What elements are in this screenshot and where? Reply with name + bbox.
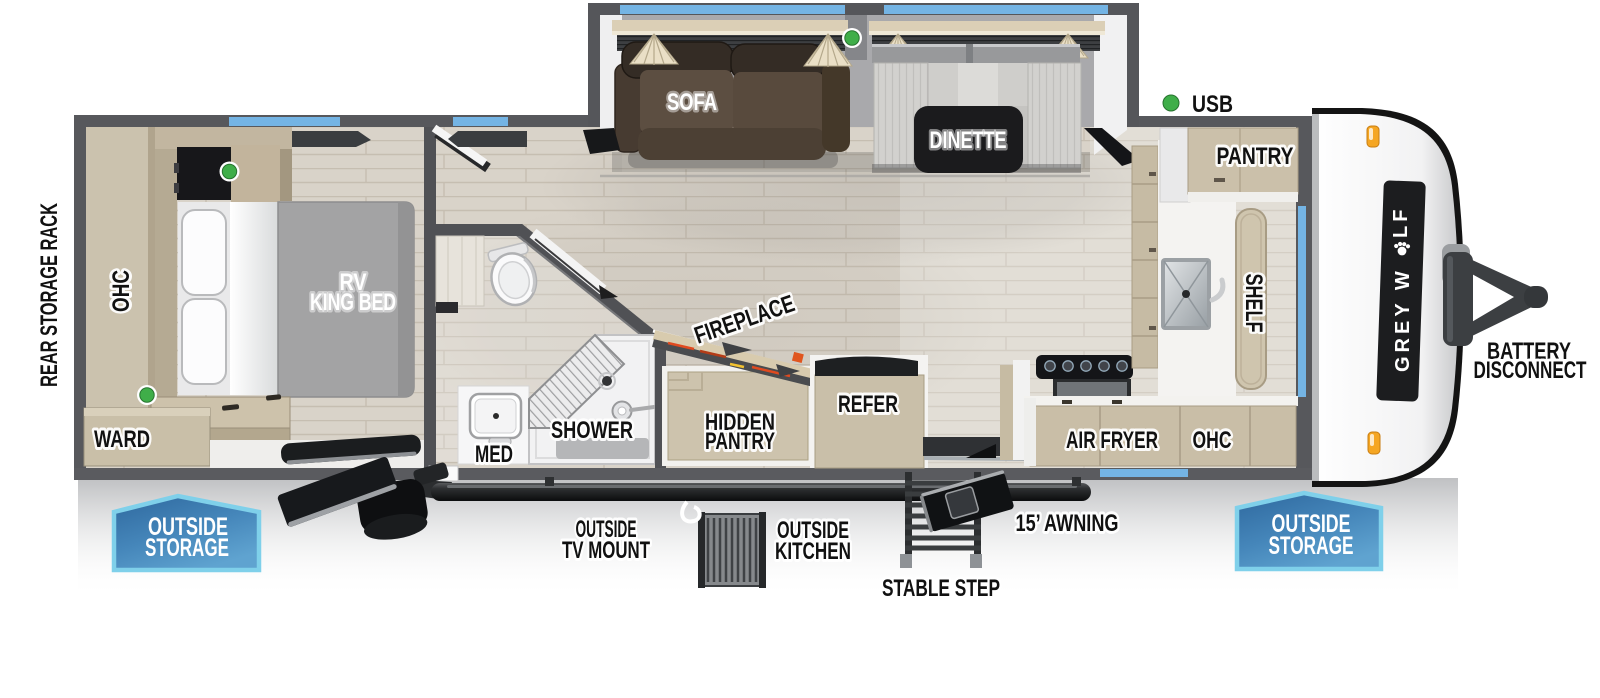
svg-text:KITCHEN: KITCHEN <box>775 538 851 565</box>
svg-text:DINETTE: DINETTE <box>930 127 1007 154</box>
svg-text:SOFA: SOFA <box>667 89 717 116</box>
svg-text:AIR FRYER: AIR FRYER <box>1066 427 1158 454</box>
svg-text:STORAGE: STORAGE <box>1269 532 1354 560</box>
svg-text:PANTRY: PANTRY <box>1217 143 1294 170</box>
svg-text:REFER: REFER <box>838 391 898 418</box>
svg-text:MED: MED <box>475 441 513 468</box>
svg-text:KING BED: KING BED <box>310 289 396 316</box>
svg-text:OHC: OHC <box>1193 427 1232 454</box>
svg-text:STORAGE: STORAGE <box>145 534 229 562</box>
svg-text:TV MOUNT: TV MOUNT <box>562 537 650 564</box>
svg-text:WARD: WARD <box>94 426 150 453</box>
svg-text:15’ AWNING: 15’ AWNING <box>1016 510 1119 537</box>
svg-text:REAR STORAGE RACK: REAR STORAGE RACK <box>36 203 63 387</box>
svg-text:SHOWER: SHOWER <box>551 417 633 444</box>
svg-text:LF: LF <box>1390 206 1412 238</box>
svg-text:GREY W: GREY W <box>1392 267 1414 372</box>
svg-text:DISCONNECT: DISCONNECT <box>1474 357 1587 384</box>
svg-text:OHC: OHC <box>108 270 135 312</box>
svg-text:STABLE STEP: STABLE STEP <box>882 575 1000 602</box>
svg-text:USB: USB <box>1192 91 1233 118</box>
svg-text:PANTRY: PANTRY <box>705 428 775 455</box>
svg-text:SHELF: SHELF <box>1240 274 1267 333</box>
